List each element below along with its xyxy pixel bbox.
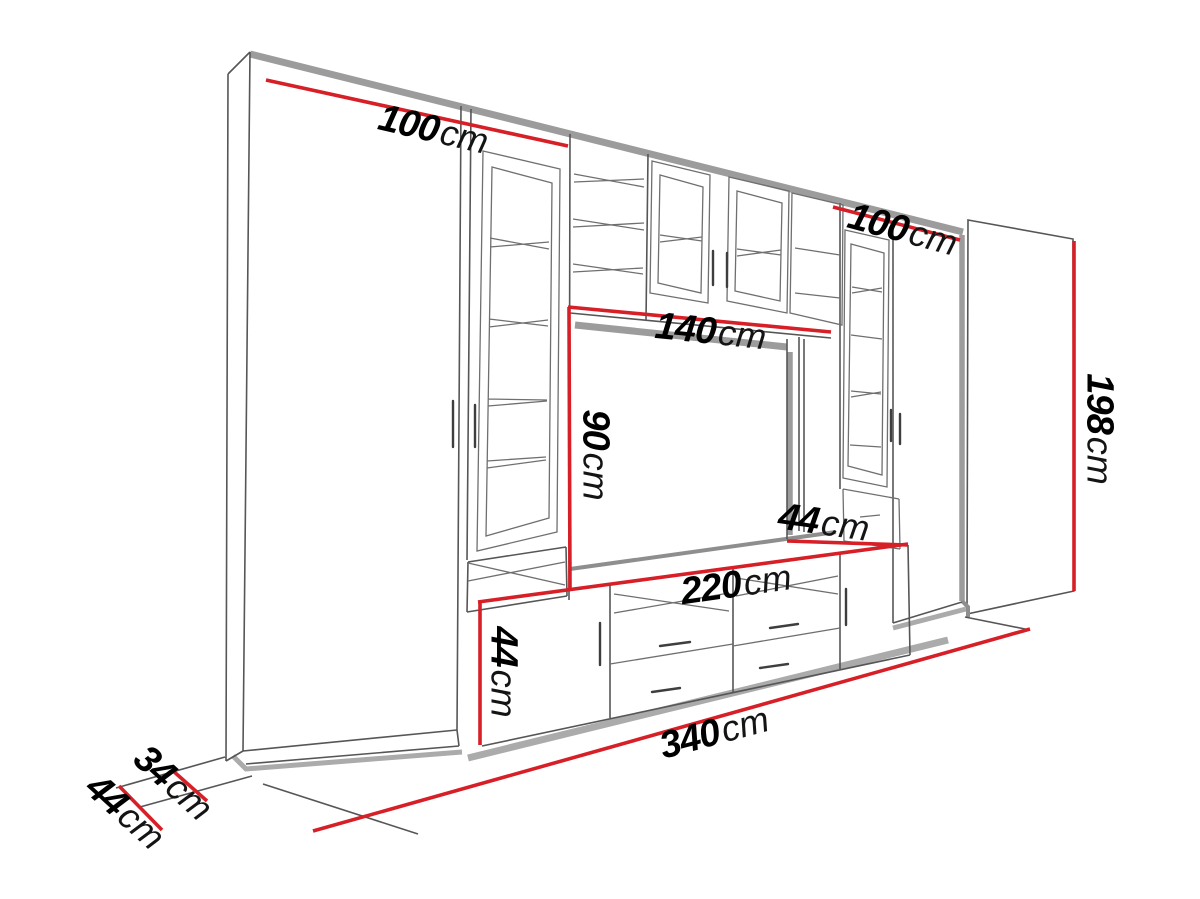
dim-label-total-height: 198cm <box>1078 373 1120 484</box>
dim-label-right-upper-cabinet-width: 100cm <box>843 195 961 264</box>
carcass-outlines <box>116 52 1030 834</box>
dim-label-tv-stand-width: 220cm <box>677 556 794 613</box>
dim-label-tv-stand-height: 44cm <box>482 625 524 717</box>
furniture-dimension-diagram: 100cm 100cm 140cm 90cm 44cm 220cm 44cm 3… <box>0 0 1200 899</box>
dim-label-tv-niche-height: 90cm <box>574 409 616 500</box>
wall-unit-drawing: 100cm 100cm 140cm 90cm 44cm 220cm 44cm 3… <box>0 0 1200 899</box>
dim-label-tv-niche-width: 140cm <box>653 305 768 358</box>
right-height-panel <box>967 220 1074 614</box>
dim-line-tv-niche-height <box>569 307 570 588</box>
